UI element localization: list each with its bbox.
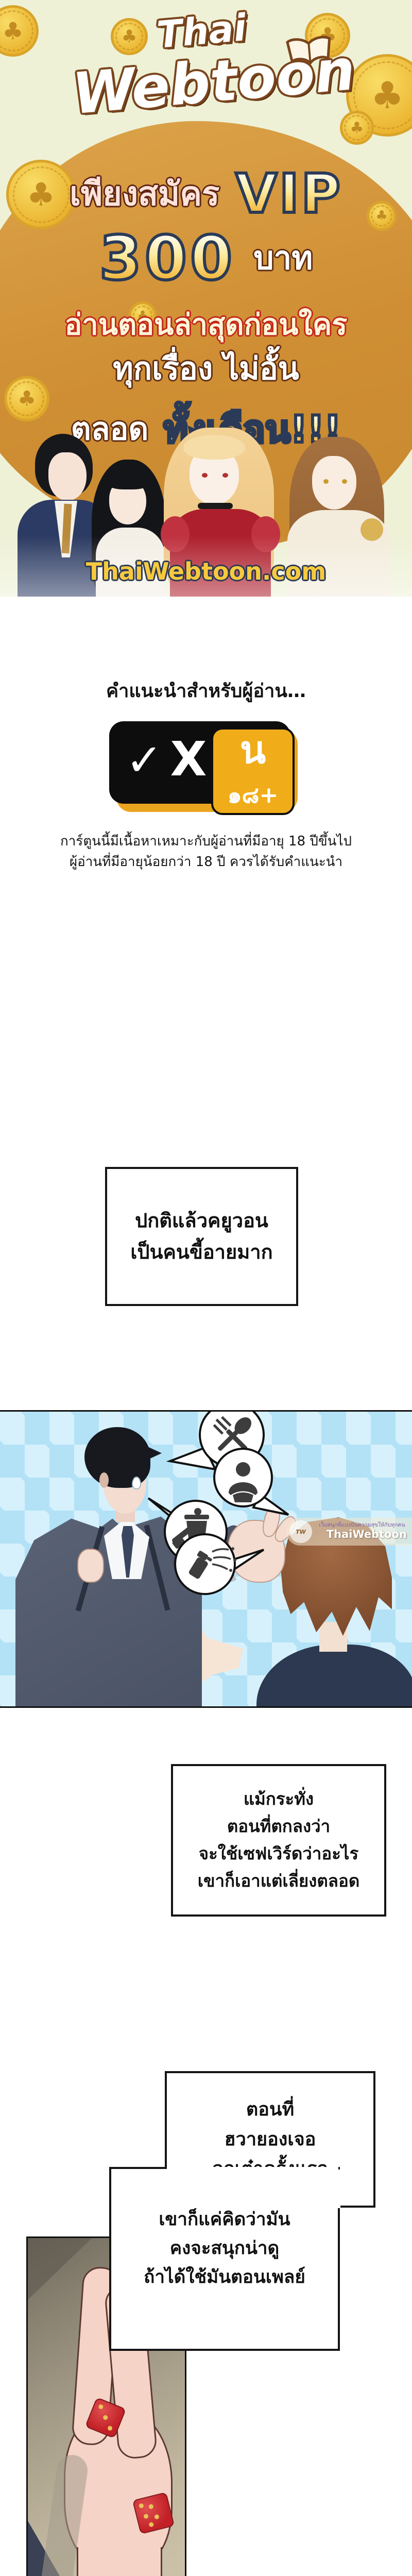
advisory-line-1: การ์ตูนนี้มีเนื้อหาเหมาะกับผู้อ่านที่มีอ… [0,831,412,852]
char2-fringe [105,471,151,489]
char4-eye-left [323,479,329,484]
narration-text: เขาก็แค่คิดว่ามัน [111,2205,338,2234]
cross-icon: X [163,732,214,787]
char4-face [312,456,356,510]
char3-eye-right [222,473,228,478]
narration-text: คงจะสนุกน่าดู [111,2234,338,2263]
promo-line2-number: 300 [99,223,235,294]
rating-badge: ✓ X น ๑๘+ [0,716,412,824]
narration-text: ปกติแล้วคยูวอน [107,1205,296,1236]
char3-eye-left [202,473,208,478]
narration-text: ตอนที่ตกลงว่า [173,1813,384,1840]
badge-rating-18: ๑๘+ [211,777,295,813]
promo-line-4: ทุกเรื่อง ไม่อั้น [0,344,412,393]
narration-box-1: ปกติแล้วคยูวอน เป็นคนขี้อายมาก [105,1167,298,1306]
charade-bubbles [0,1412,412,1708]
watermark-logo-circle: TW [289,1520,312,1543]
advisory-heading: คำแนะนำสำหรับผู้อ่าน… [0,676,412,705]
narration-text: จะใช้เซฟเวิร์ดว่าอะไร [173,1840,384,1868]
banner-website: ThaiWebtoon.com [0,557,412,585]
char3-choker [198,503,233,509]
promo-banner[interactable]: ♣ ♣ ♣ ♣ ♣ ♣ ♣ ♣ ♣ Thai Webtoon เพียงสมัค… [0,0,412,597]
promo-line-1: เพียงสมัคร VIP [0,162,412,225]
watermark-brand: ThaiWebtoon [314,1528,410,1540]
narration-text: ถ้าได้ใช้มันตอนเพลย์ [111,2263,338,2292]
narration-text: แม้กระทั่ง [173,1786,384,1813]
char1-face [48,452,87,501]
promo-line1-prefix: เพียงสมัคร [70,175,219,213]
clover-coin-icon: ♣ [0,5,39,57]
narration-text: เป็นคนขี้อายมาก [107,1236,296,1268]
site-watermark: TW เว็บสนุกที่แบ่งปันความสุขให้กับทุกคน … [286,1518,412,1546]
webtoon-page: ♣ ♣ ♣ ♣ ♣ ♣ ♣ ♣ ♣ Thai Webtoon เพียงสมัค… [0,0,412,2576]
narration-box-2: แม้กระทั่ง ตอนที่ตกลงว่า จะใช้เซฟเวิร์ดว… [171,1764,386,1917]
box-step-patch [167,2167,338,2170]
check-icon: ✓ [118,735,170,786]
promo-line1-vip: VIP [235,162,342,225]
narration-text: ตอนที่ [167,2095,373,2125]
box-step-patch [337,2170,340,2208]
narration-text: เขาก็เอาแต่เลี่ยงตลอด [173,1868,384,1895]
advisory-line-2: ผู้อ่านที่มีอายุน้อยกว่า 18 ปี ควรได้รับ… [0,851,412,872]
open-book-icon [285,34,334,69]
panel-charades: TW เว็บสนุกที่แบ่งปันความสุขให้กับทุกคน … [0,1410,412,1708]
promo-line2-unit: บาท [253,239,313,277]
narration-text: ฮวายองเจอ [167,2125,373,2155]
narration-box-3b: เขาก็แค่คิดว่ามัน คงจะสนุกน่าดู ถ้าได้ใช… [109,2167,340,2351]
brand-logo: Thai Webtoon [66,0,346,165]
promo-line-3: อ่านตอนล่าสุดก่อนใคร [0,301,412,347]
char3-fringe [183,435,245,460]
wrist [77,2547,162,2576]
badge-thai-letter: น [211,730,295,771]
char4-eye-right [342,479,347,484]
promo-line-2: 300 บาท [0,223,412,294]
